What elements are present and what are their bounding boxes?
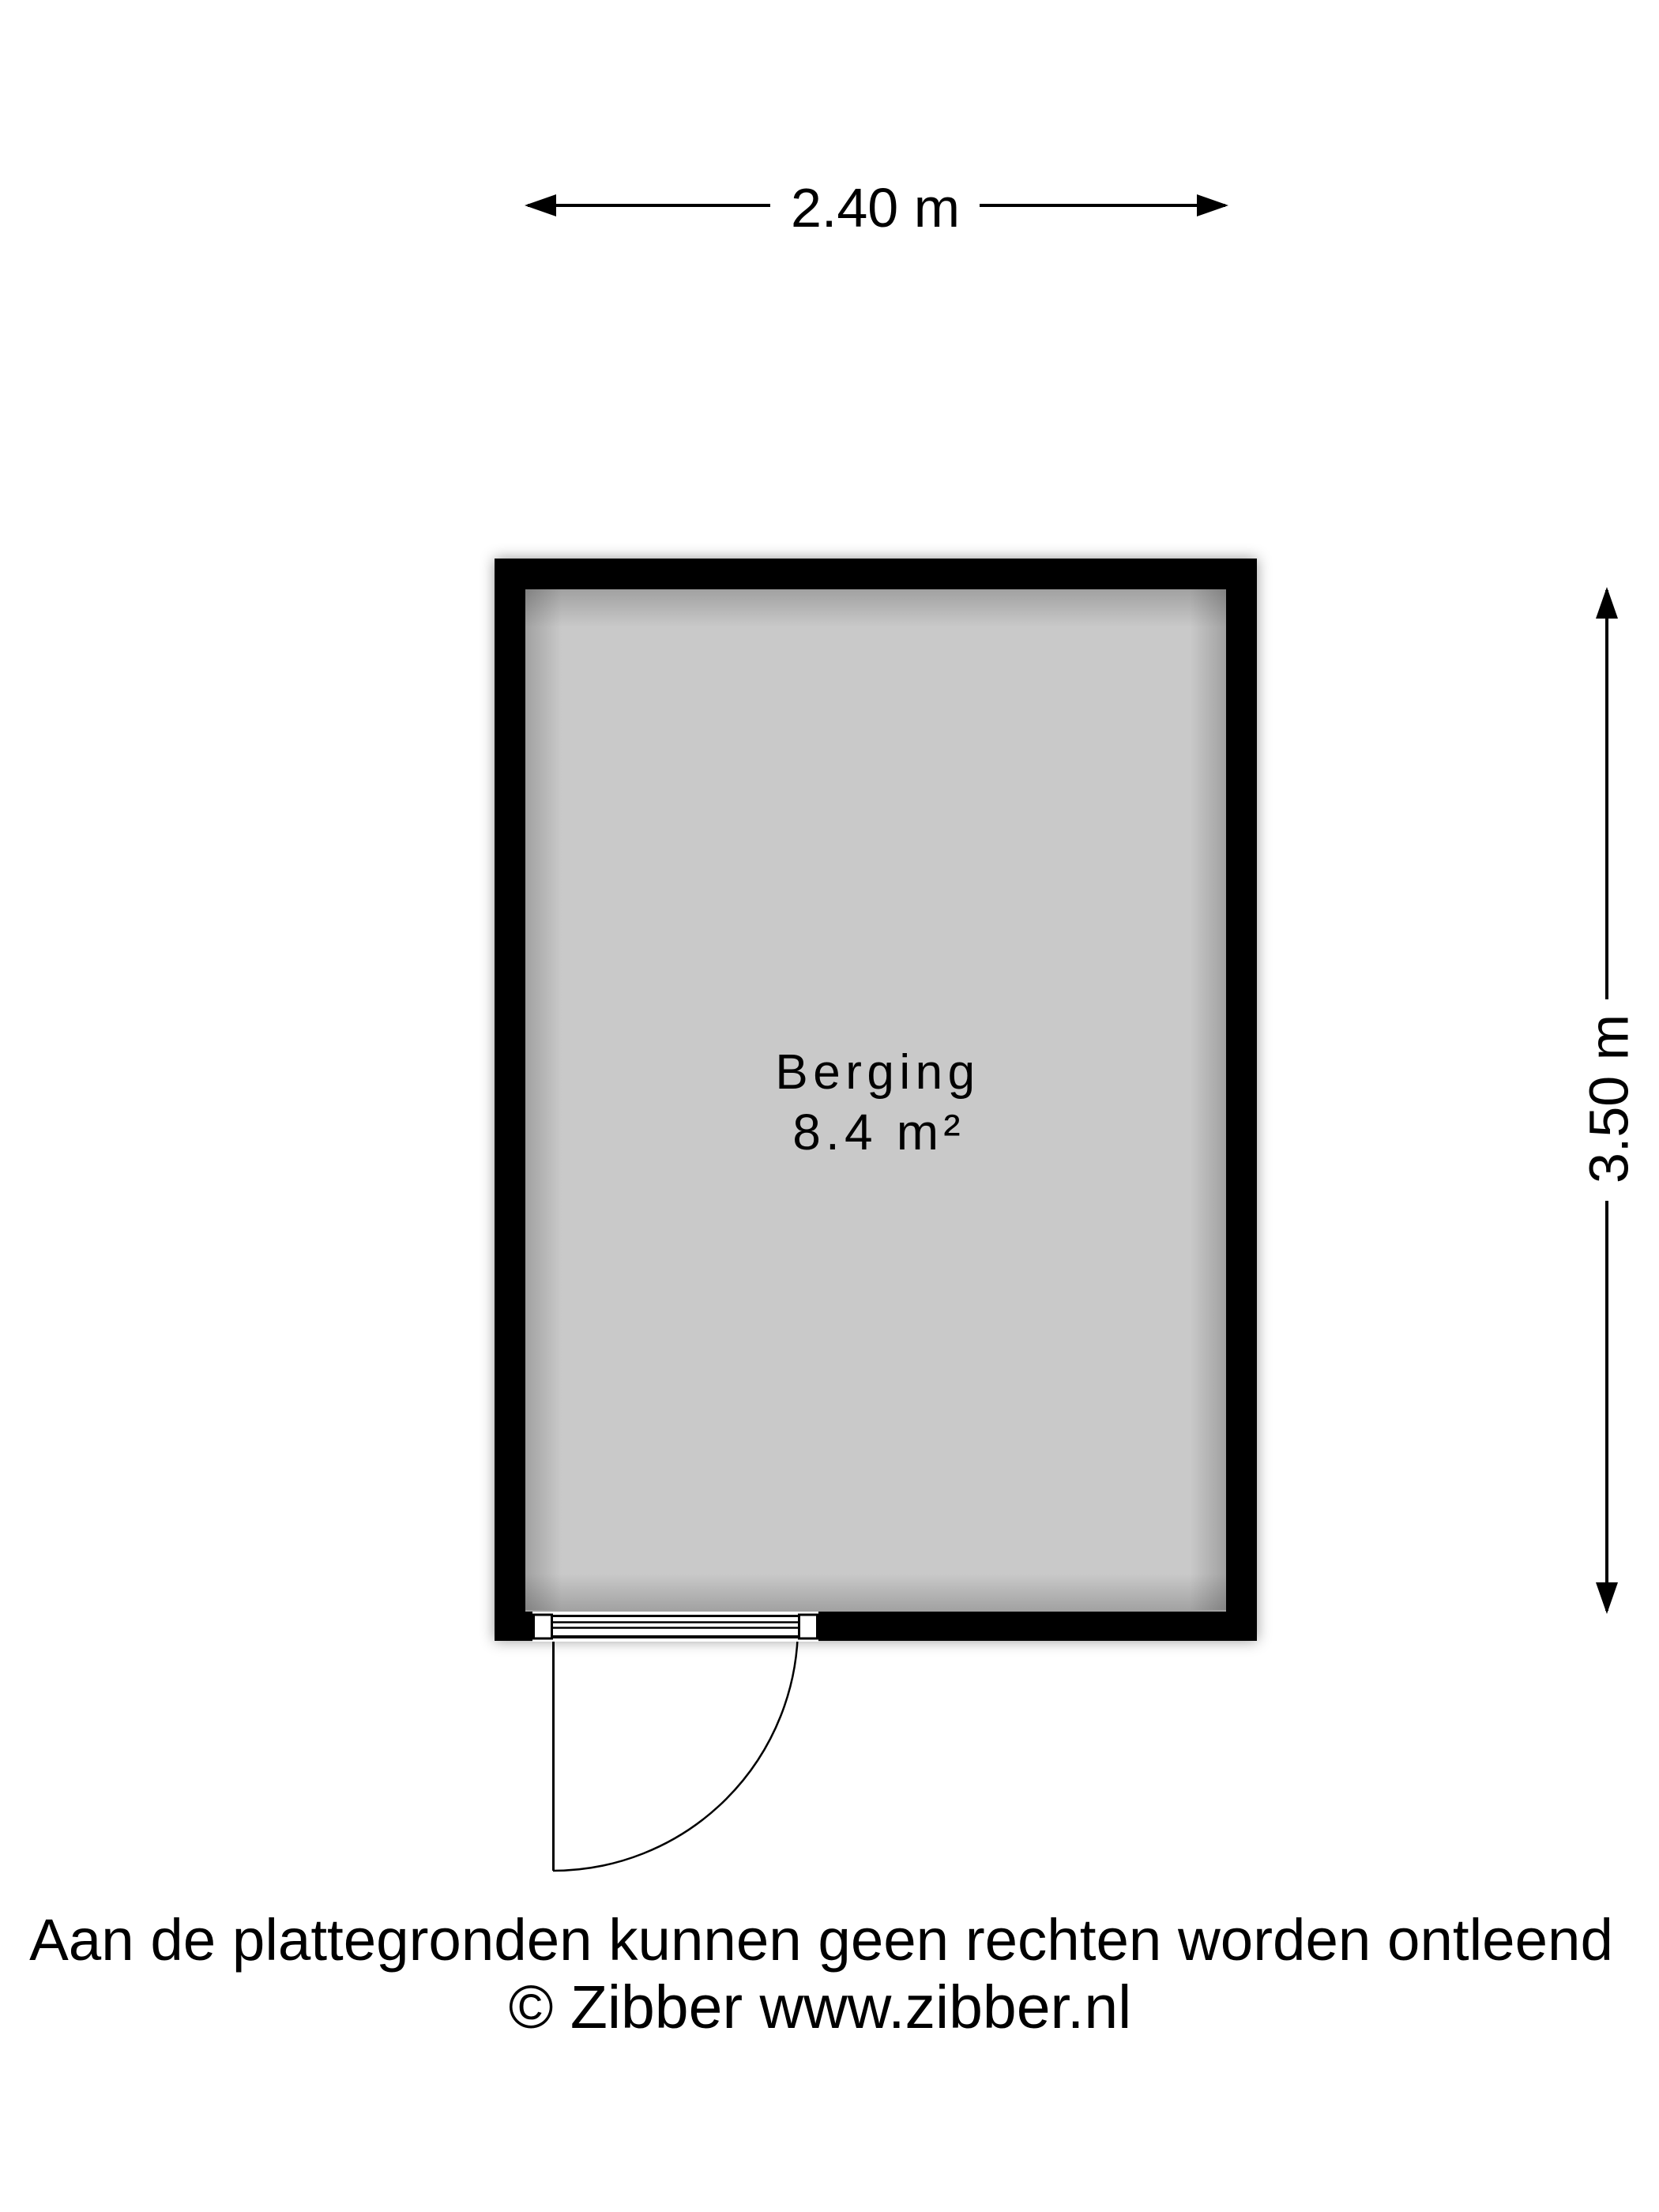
svg-text:Aan de plattegronden kunnen ge: Aan de plattegronden kunnen geen rechten… <box>29 1907 1613 1973</box>
svg-text:Berging: Berging <box>775 1045 980 1100</box>
svg-text:© Zibber www.zibber.nl: © Zibber www.zibber.nl <box>509 1973 1132 2041</box>
svg-text:8.4 m²: 8.4 m² <box>792 1104 965 1161</box>
svg-text:2.40 m: 2.40 m <box>791 177 960 239</box>
svg-text:3.50 m: 3.50 m <box>1578 1014 1640 1183</box>
